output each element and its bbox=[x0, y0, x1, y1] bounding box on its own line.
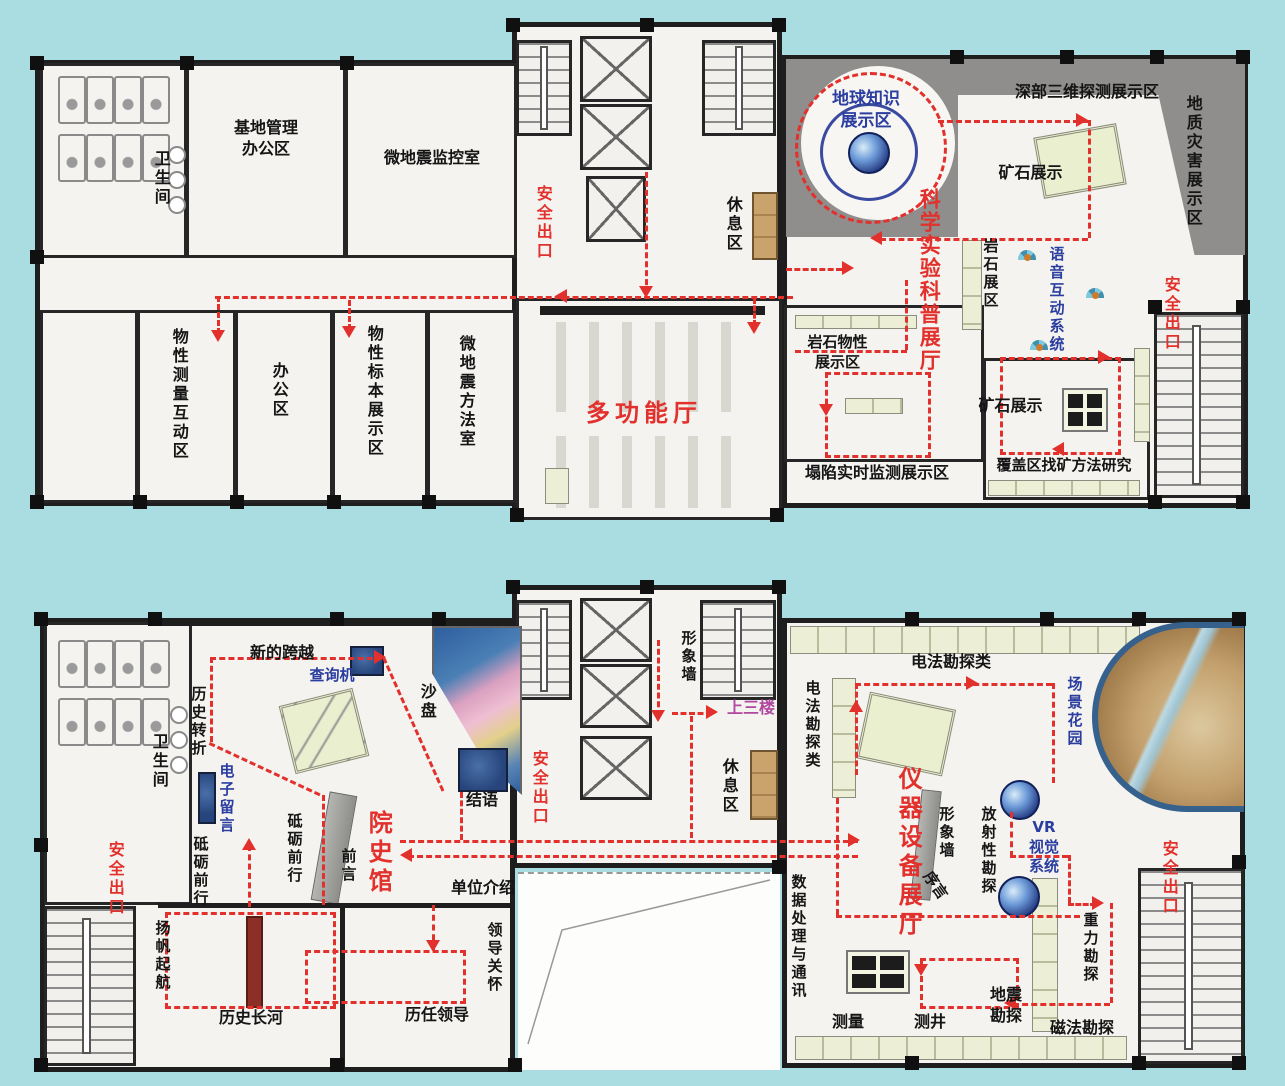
route-arrow bbox=[966, 676, 978, 690]
exhibit-shelf bbox=[790, 626, 1140, 654]
route-segment bbox=[1052, 683, 1055, 783]
stair-rail bbox=[1184, 882, 1193, 1050]
column bbox=[510, 508, 524, 522]
label-new-leap: 新的跨越 bbox=[232, 643, 332, 664]
route-segment bbox=[645, 172, 648, 294]
column bbox=[1232, 1056, 1246, 1070]
column bbox=[1040, 612, 1054, 626]
label-multi-hall: 多功能厅 bbox=[586, 398, 702, 429]
label-query-machine: 查询机 bbox=[300, 666, 364, 686]
route-segment bbox=[248, 845, 251, 907]
toilet-stall bbox=[86, 134, 114, 182]
elevator-icon bbox=[580, 36, 652, 102]
column bbox=[422, 495, 436, 509]
column bbox=[905, 1056, 919, 1070]
route-segment bbox=[400, 840, 858, 843]
column bbox=[508, 1058, 522, 1072]
column bbox=[772, 580, 786, 594]
label-safety-exit-core-top: 安全出口 bbox=[532, 185, 553, 261]
column bbox=[640, 18, 654, 32]
label-foreword: 前言 bbox=[338, 848, 358, 884]
route-arrow bbox=[1098, 350, 1110, 364]
route-arrow bbox=[211, 330, 225, 342]
label-geo-disaster: 地质灾害展示区 bbox=[1182, 95, 1203, 228]
column bbox=[30, 250, 44, 264]
column bbox=[133, 495, 147, 509]
route-segment bbox=[938, 120, 1088, 123]
toilet-stall bbox=[58, 698, 86, 746]
label-gravity: 重力勘探 bbox=[1080, 912, 1100, 984]
route-arrow bbox=[400, 848, 412, 862]
route-arrow bbox=[651, 710, 665, 722]
label-unit-intro: 单位介绍 bbox=[428, 878, 538, 899]
column bbox=[30, 495, 44, 509]
label-history-hall-title: 院史馆 bbox=[362, 810, 393, 897]
label-ore-display-2: 矿石展示 bbox=[968, 396, 1053, 417]
route-arrow bbox=[848, 833, 860, 847]
sink-icon bbox=[170, 706, 188, 724]
column bbox=[1236, 300, 1250, 314]
stage-bar bbox=[540, 306, 765, 315]
column bbox=[34, 612, 48, 626]
label-earth-knowledge: 地球知识 展示区 bbox=[804, 88, 928, 132]
route-segment bbox=[1110, 903, 1113, 1003]
column bbox=[950, 50, 964, 64]
column bbox=[1232, 855, 1246, 869]
label-sail: 扬帆起航 bbox=[152, 920, 172, 992]
toilet-stall bbox=[114, 134, 142, 182]
label-leader-care: 领导关怀 bbox=[484, 922, 504, 994]
stair-rail bbox=[735, 46, 743, 130]
label-sand-table: 沙盘 bbox=[416, 683, 437, 721]
label-forge-ahead-2: 砥砺前行 bbox=[284, 813, 304, 885]
column bbox=[1232, 612, 1246, 626]
seat-bank bbox=[556, 436, 748, 508]
floorplan-canvas: 卫生间 基地管理 办公区 微地震监控室 物性测量互动区 办公区 物性标本展示区 … bbox=[0, 0, 1285, 1086]
exhibit-shelf bbox=[962, 240, 982, 330]
toilet-stall bbox=[114, 640, 142, 688]
stair-rail bbox=[1192, 325, 1201, 485]
column bbox=[506, 580, 520, 594]
label-rock-zone: 岩石展区 bbox=[980, 238, 1000, 310]
route-arrow bbox=[849, 700, 863, 712]
column bbox=[327, 495, 341, 509]
label-prop-measure: 物性测量互动区 bbox=[168, 328, 189, 461]
column bbox=[905, 612, 919, 626]
label-well-logging: 测井 bbox=[902, 1012, 958, 1033]
vr-globe-icon bbox=[998, 876, 1040, 918]
column bbox=[1132, 1056, 1146, 1070]
column bbox=[772, 18, 786, 32]
column bbox=[340, 56, 354, 70]
stair-rail bbox=[540, 608, 548, 692]
route-segment bbox=[408, 855, 858, 858]
route-arrow bbox=[242, 838, 256, 850]
route-segment bbox=[836, 798, 839, 915]
column bbox=[772, 860, 786, 874]
column bbox=[148, 612, 162, 626]
column bbox=[330, 1058, 344, 1072]
column bbox=[30, 56, 44, 70]
column bbox=[770, 508, 784, 522]
wall bbox=[158, 903, 515, 908]
sofa bbox=[750, 750, 778, 820]
label-rest-area-bottom: 休息区 bbox=[718, 758, 739, 815]
exhibit-shelf bbox=[1134, 348, 1150, 442]
route-arrow bbox=[914, 964, 928, 976]
route-segment bbox=[1088, 120, 1091, 238]
elevator-icon bbox=[580, 598, 652, 662]
label-safety-exit-top-right: 安全出口 bbox=[1160, 276, 1181, 352]
label-history-river: 历史长河 bbox=[196, 1008, 306, 1029]
route-arrow bbox=[639, 286, 653, 298]
toilet-stall bbox=[142, 76, 170, 124]
conclusion-screen bbox=[458, 748, 508, 792]
route-segment bbox=[690, 716, 693, 838]
stair-rail bbox=[734, 608, 742, 692]
label-image-wall-core: 形象墙 bbox=[678, 630, 698, 684]
label-restroom-bottom: 卫生间 bbox=[148, 733, 169, 790]
label-magnetic: 磁法勘探 bbox=[1032, 1018, 1132, 1039]
column bbox=[1236, 50, 1250, 64]
toilet-stall bbox=[58, 640, 86, 688]
elevator-icon bbox=[586, 176, 646, 242]
void-outline-lines bbox=[518, 872, 780, 1068]
stair-rail bbox=[540, 46, 548, 130]
elevator-icon bbox=[580, 104, 652, 170]
route-arrow bbox=[1092, 896, 1104, 910]
label-conclusion: 结语 bbox=[450, 790, 514, 811]
label-sci-hall-title: 科学实验科普展厅 bbox=[915, 188, 942, 372]
label-restroom-top: 卫生间 bbox=[150, 150, 171, 207]
label-safety-exit-bl: 安全出口 bbox=[104, 841, 125, 917]
route-segment bbox=[217, 296, 220, 334]
label-image-wall-2: 形象墙 bbox=[936, 806, 956, 860]
route-segment bbox=[855, 683, 858, 775]
column bbox=[1132, 612, 1146, 626]
elevator-icon bbox=[580, 736, 652, 800]
route-loop bbox=[825, 372, 931, 458]
route-arrow bbox=[819, 404, 833, 416]
sink-icon bbox=[170, 756, 188, 774]
e-message-screen bbox=[198, 772, 216, 824]
exhibit-shelf bbox=[988, 480, 1140, 496]
label-rest-area-top: 休息区 bbox=[722, 196, 743, 253]
toilet-stall bbox=[114, 76, 142, 124]
route-segment bbox=[657, 640, 660, 716]
stair-rail bbox=[82, 918, 91, 1054]
route-segment bbox=[836, 915, 1080, 918]
route-segment bbox=[905, 280, 908, 350]
label-collapse-monitor: 塌陷实时监测展示区 bbox=[787, 463, 967, 484]
label-radioactive: 放射性勘探 bbox=[978, 806, 998, 896]
route-arrow bbox=[342, 326, 356, 338]
column bbox=[506, 18, 520, 32]
label-electrical-v: 电法勘探类 bbox=[802, 680, 822, 770]
toilet-stall bbox=[114, 698, 142, 746]
route-loop bbox=[165, 912, 336, 1009]
column bbox=[432, 612, 446, 626]
column bbox=[1150, 50, 1164, 64]
toilet-stall bbox=[86, 640, 114, 688]
toilet-stall bbox=[86, 76, 114, 124]
toilet-stall bbox=[86, 698, 114, 746]
label-past-leaders: 历任领导 bbox=[382, 1005, 492, 1026]
route-arrow bbox=[747, 322, 761, 334]
label-seismic: 地震 勘探 bbox=[978, 985, 1034, 1027]
label-history-turn: 历史转折 bbox=[188, 686, 208, 758]
sofa bbox=[752, 192, 778, 260]
route-segment bbox=[855, 683, 1052, 686]
room-base-office bbox=[186, 63, 346, 258]
label-rock-physical: 岩石物性 展示区 bbox=[790, 333, 885, 372]
label-up-third-floor: 上三楼 bbox=[714, 698, 788, 719]
sink-icon bbox=[170, 731, 188, 749]
label-data-comm: 数据处理与通讯 bbox=[788, 874, 808, 1000]
label-micro-monitor: 微地震监控室 bbox=[352, 148, 512, 169]
exhibit-shelf bbox=[832, 678, 856, 798]
route-segment bbox=[210, 657, 213, 742]
label-e-message: 电子留言 bbox=[216, 763, 236, 835]
label-base-office: 基地管理 办公区 bbox=[206, 118, 326, 160]
route-arrow bbox=[555, 289, 567, 303]
route-segment bbox=[322, 795, 325, 905]
toilet-stall bbox=[142, 640, 170, 688]
toilet-stall bbox=[58, 76, 86, 124]
column bbox=[1236, 495, 1250, 509]
toilet-stall bbox=[58, 134, 86, 182]
label-voice-system: 语音互动系统 bbox=[1046, 246, 1066, 354]
column bbox=[1060, 50, 1074, 64]
route-arrow bbox=[1052, 442, 1064, 456]
route-segment bbox=[786, 268, 842, 271]
vr-globe-icon bbox=[1000, 780, 1040, 820]
comm-table bbox=[846, 950, 910, 994]
label-survey: 测量 bbox=[820, 1012, 876, 1033]
route-arrow bbox=[842, 261, 854, 275]
podium bbox=[545, 468, 569, 504]
route-arrow bbox=[1076, 113, 1088, 127]
column bbox=[640, 580, 654, 594]
elevator-icon bbox=[580, 664, 652, 728]
exhibit-shelf bbox=[795, 315, 917, 329]
label-micro-method: 微地震方法室 bbox=[455, 335, 476, 449]
route-arrow bbox=[426, 940, 440, 952]
label-covered-method: 覆盖区找矿方法研究 bbox=[980, 456, 1148, 476]
column bbox=[180, 56, 194, 70]
exhibit-shelf bbox=[795, 1036, 1127, 1060]
route-arrow bbox=[870, 231, 882, 245]
label-vr-system: VR 视觉 系统 bbox=[1012, 818, 1076, 877]
room-blank bbox=[40, 310, 138, 503]
label-deep-3d: 深部三维探测展示区 bbox=[992, 82, 1182, 103]
label-safety-exit-br: 安全出口 bbox=[1158, 840, 1179, 916]
label-instrument-hall-title: 仪器设备展厅 bbox=[892, 766, 923, 940]
column bbox=[330, 612, 344, 626]
label-prop-specimen: 物性标本展示区 bbox=[363, 325, 384, 458]
label-electrical-h: 电法勘探类 bbox=[886, 652, 1016, 673]
label-forge-ahead-1: 砥砺前行 bbox=[190, 836, 210, 908]
column bbox=[1148, 495, 1162, 509]
route-segment bbox=[215, 296, 793, 299]
route-arrow bbox=[374, 650, 386, 664]
label-ore-display-1: 矿石展示 bbox=[988, 163, 1073, 184]
column bbox=[34, 1058, 48, 1072]
label-safety-exit-core-bottom: 安全出口 bbox=[528, 750, 549, 826]
label-scene-garden: 场景花园 bbox=[1064, 676, 1084, 748]
column bbox=[34, 838, 48, 852]
label-office: 办公区 bbox=[268, 362, 289, 419]
column bbox=[230, 495, 244, 509]
